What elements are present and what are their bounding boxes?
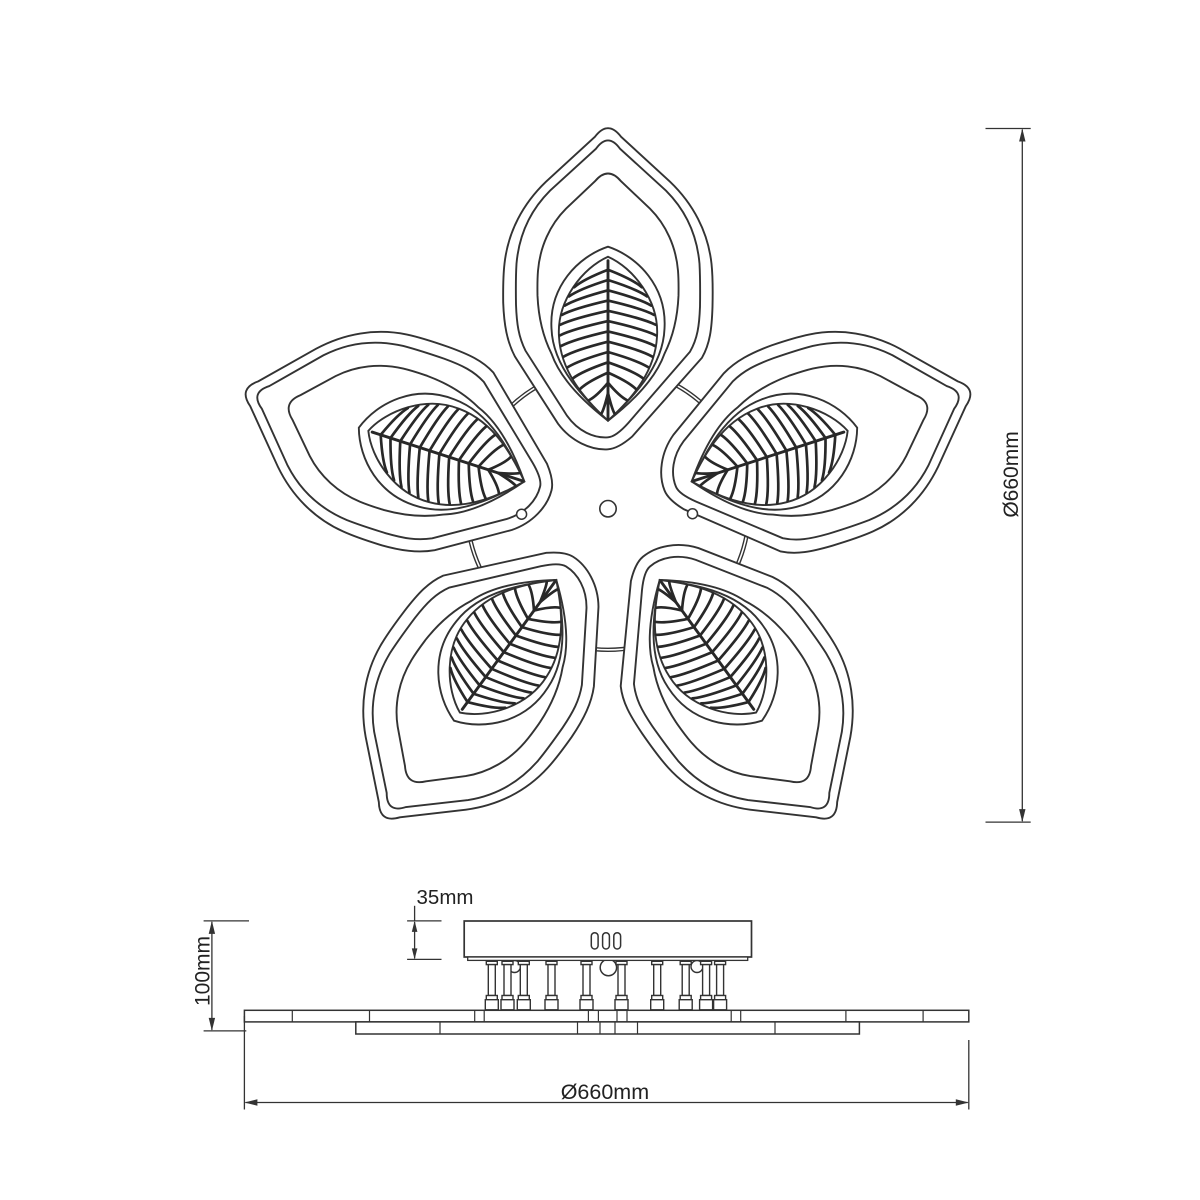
svg-text:Ø660mm: Ø660mm [561, 1080, 649, 1104]
svg-text:Ø660mm: Ø660mm [1000, 431, 1023, 517]
svg-text:100mm: 100mm [192, 936, 215, 1006]
svg-text:35mm: 35mm [417, 886, 474, 909]
